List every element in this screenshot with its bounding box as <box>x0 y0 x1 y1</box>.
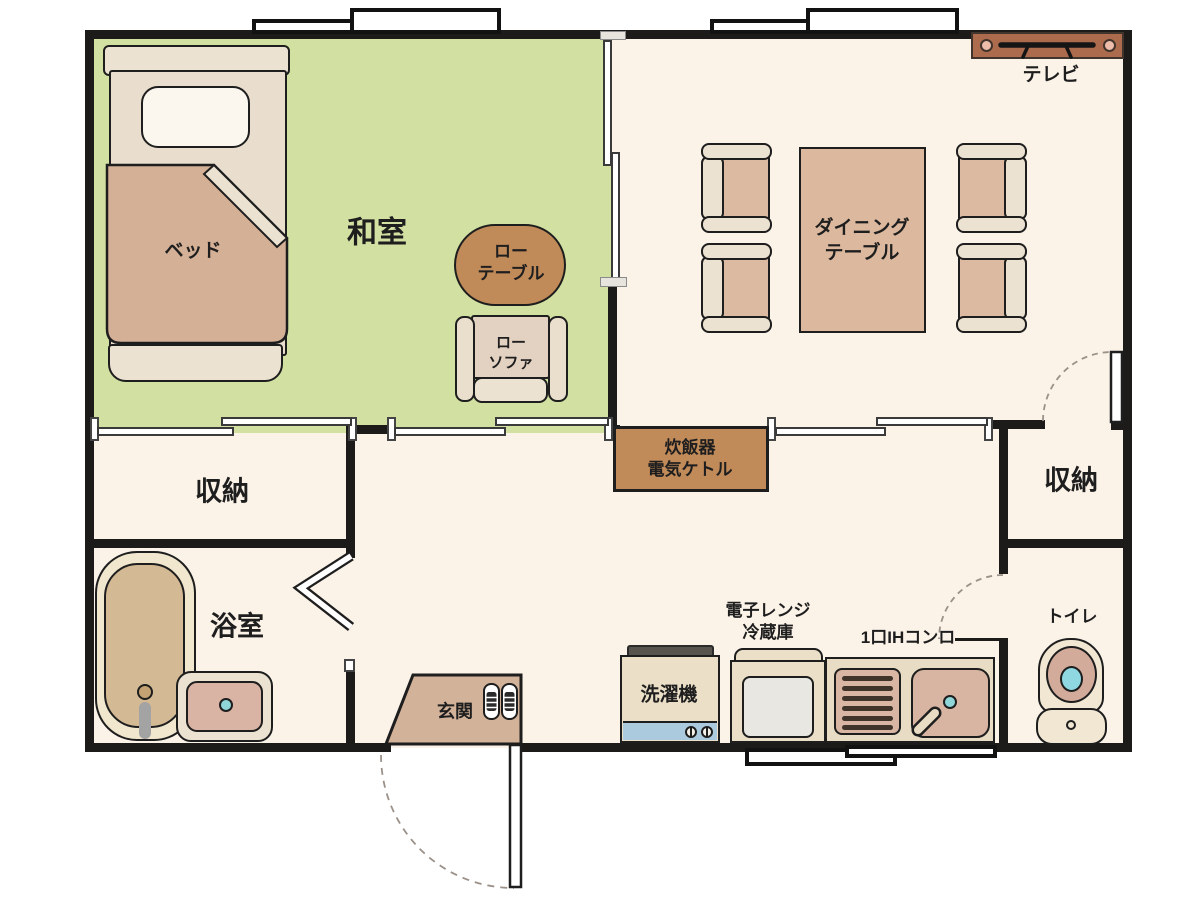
sofa-front-cushion <box>473 377 548 403</box>
outer-wall-left <box>85 30 94 752</box>
sliding-door-panel <box>495 417 609 426</box>
toilet-button <box>1066 720 1076 730</box>
bathtub-drain <box>137 684 153 700</box>
low-table-label-line2: テーブル <box>478 263 545 285</box>
chair-armrest <box>956 216 1027 233</box>
storage-right-bottom-wall <box>999 539 1132 548</box>
chair-seat <box>717 254 770 322</box>
grill-slat <box>842 676 893 681</box>
dining-chair <box>701 243 772 333</box>
sliding-door-panel <box>394 427 506 436</box>
grill-slat <box>842 716 893 721</box>
bed-footboard <box>108 344 283 382</box>
chair-armrest <box>956 143 1027 160</box>
chair-back <box>1004 256 1027 320</box>
grill-slat <box>842 725 893 730</box>
furniture-label-ih-stove: 1口IHコンロ <box>861 627 955 649</box>
washer-dial <box>701 726 713 738</box>
chair-armrest <box>956 243 1027 260</box>
tv-unit <box>971 32 1124 59</box>
storage-left-bottom-wall <box>85 539 355 548</box>
outer-wall-bottom-left <box>85 743 391 752</box>
dining-chair <box>956 243 1027 333</box>
rice-cooker-label-line2: 電気ケトル <box>648 459 733 481</box>
chair-armrest <box>701 143 772 160</box>
window-top-right-a <box>710 19 815 34</box>
kitchen-sink-drain <box>943 695 957 709</box>
toilet-left-wall <box>999 638 1008 743</box>
washer-dial <box>685 726 697 738</box>
washer-dial-mark <box>706 728 708 736</box>
kitchen-toilet-divider-line <box>955 638 1003 641</box>
chair-back <box>701 256 724 320</box>
low-table-label-line1: ロー <box>478 241 545 263</box>
front-door-panel <box>510 745 521 887</box>
bed-pillow <box>141 86 250 148</box>
fridge-door <box>742 676 814 738</box>
sofa-armrest <box>548 316 568 402</box>
sofa-armrest <box>455 316 475 402</box>
bathroom-door-jamb <box>344 659 355 672</box>
furniture-label-low-table: ロー テーブル <box>478 241 545 285</box>
dining-chair <box>956 143 1027 233</box>
chair-armrest <box>956 316 1027 333</box>
rice-cooker-label-line1: 炊飯器 <box>648 437 733 459</box>
sliding-door-panel <box>221 417 352 426</box>
sliding-door-panel-vertical <box>611 152 620 280</box>
grill-slat <box>842 686 893 691</box>
kitchen-grill-rack <box>834 668 901 735</box>
fridge-label-line2: 冷蔵庫 <box>726 622 811 644</box>
chair-seat <box>717 154 770 222</box>
furniture-label-microwave-fridge: 電子レンジ 冷蔵庫 <box>726 600 811 644</box>
partition-wall-solid <box>608 286 617 433</box>
grill-slat <box>842 696 893 701</box>
sliding-door-panel <box>876 417 988 426</box>
chair-back <box>701 156 724 220</box>
room-label-toilet: トイレ <box>1047 606 1098 628</box>
room-label-storage-right: 収納 <box>1044 463 1098 498</box>
toilet-door-stub-top <box>999 548 1008 574</box>
storage-right-left-wall <box>999 428 1008 543</box>
sliding-door-panel <box>97 427 234 436</box>
wall-seg-storage-door-jamb <box>1111 421 1132 430</box>
low-sofa-label-line2: ソファ <box>488 353 533 373</box>
dining-table-label-line1: ダイニング <box>814 216 909 241</box>
window-top-right-b <box>806 8 959 34</box>
bathroom-door-stub-top <box>346 548 355 558</box>
furniture-label-washing-machine: 洗濯機 <box>640 684 697 709</box>
room-label-bathroom: 浴室 <box>210 609 264 644</box>
window-bottom-b <box>845 745 997 758</box>
toilet-water <box>1060 666 1083 692</box>
grill-slat <box>842 706 893 711</box>
room-label-japanese-room: 和室 <box>347 214 407 253</box>
room-label-entrance: 玄関 <box>437 700 473 723</box>
low-sofa-label-line1: ロー <box>488 334 533 354</box>
furniture-label-low-sofa: ロー ソファ <box>488 334 533 373</box>
chair-back <box>1004 156 1027 220</box>
furniture-label-bed: ベッド <box>164 240 221 265</box>
front-door-arc <box>381 755 514 888</box>
dining-chair <box>701 143 772 233</box>
bath-sink-drain <box>219 698 233 712</box>
furniture-label-tv: テレビ <box>1022 64 1079 89</box>
tv-speaker-right <box>1103 39 1116 52</box>
dining-table-label-line2: テーブル <box>814 241 909 266</box>
chair-armrest <box>701 216 772 233</box>
floor-plan: 和室 ベッド ロー テーブル ロー ソファ ダイニング テーブル テレビ 炊飯器… <box>0 0 1200 900</box>
chair-armrest <box>701 243 772 260</box>
sliding-track-cap <box>600 277 627 287</box>
furniture-label-dining-table: ダイニング テーブル <box>814 216 909 265</box>
microwave-label-line1: 電子レンジ <box>726 600 811 622</box>
wall-seg-mid <box>355 425 391 434</box>
storage-left-right-wall <box>346 425 355 548</box>
sliding-door-panel-vertical <box>603 40 612 166</box>
window-top-left-b <box>350 8 501 34</box>
bathroom-right-wall <box>346 670 355 743</box>
bathtub-faucet <box>139 702 151 739</box>
tv-speaker-left <box>980 39 993 52</box>
room-label-storage-left: 収納 <box>195 474 249 509</box>
washer-dial-mark <box>690 728 692 736</box>
furniture-label-rice-cooker: 炊飯器 電気ケトル <box>648 437 733 481</box>
outer-wall-right <box>1123 30 1132 752</box>
sliding-track-cap <box>600 31 626 40</box>
sliding-door-panel <box>775 427 886 436</box>
chair-armrest <box>701 316 772 333</box>
